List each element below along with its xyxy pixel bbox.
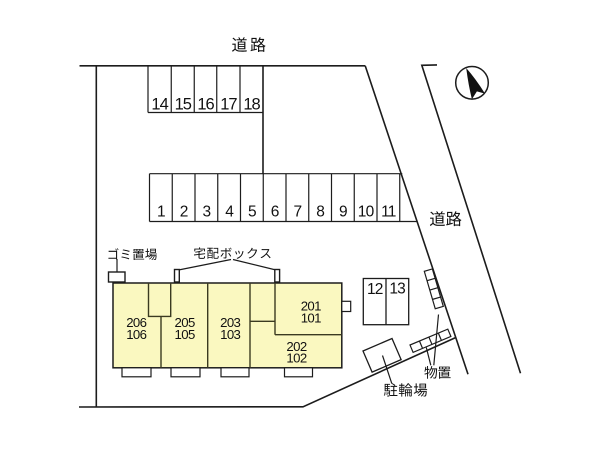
svg-text:12: 12 [367,281,383,298]
svg-text:8: 8 [316,203,324,220]
svg-text:16: 16 [197,96,214,114]
svg-text:18: 18 [243,96,260,114]
svg-text:1: 1 [157,203,165,220]
svg-text:15: 15 [175,96,192,114]
svg-text:2: 2 [180,203,188,220]
svg-text:7: 7 [293,203,301,220]
svg-text:101: 101 [301,311,321,326]
svg-text:4: 4 [225,203,234,220]
svg-text:9: 9 [339,203,347,220]
svg-text:103: 103 [220,327,240,342]
svg-text:106: 106 [126,327,146,342]
svg-text:13: 13 [389,281,405,298]
svg-text:11: 11 [381,203,396,220]
svg-text:17: 17 [220,96,237,114]
svg-text:6: 6 [271,203,279,220]
svg-text:102: 102 [286,351,306,366]
svg-text:3: 3 [202,203,210,220]
svg-text:105: 105 [174,327,194,342]
svg-text:14: 14 [151,96,168,114]
svg-text:5: 5 [248,203,256,220]
svg-text:10: 10 [358,203,375,220]
